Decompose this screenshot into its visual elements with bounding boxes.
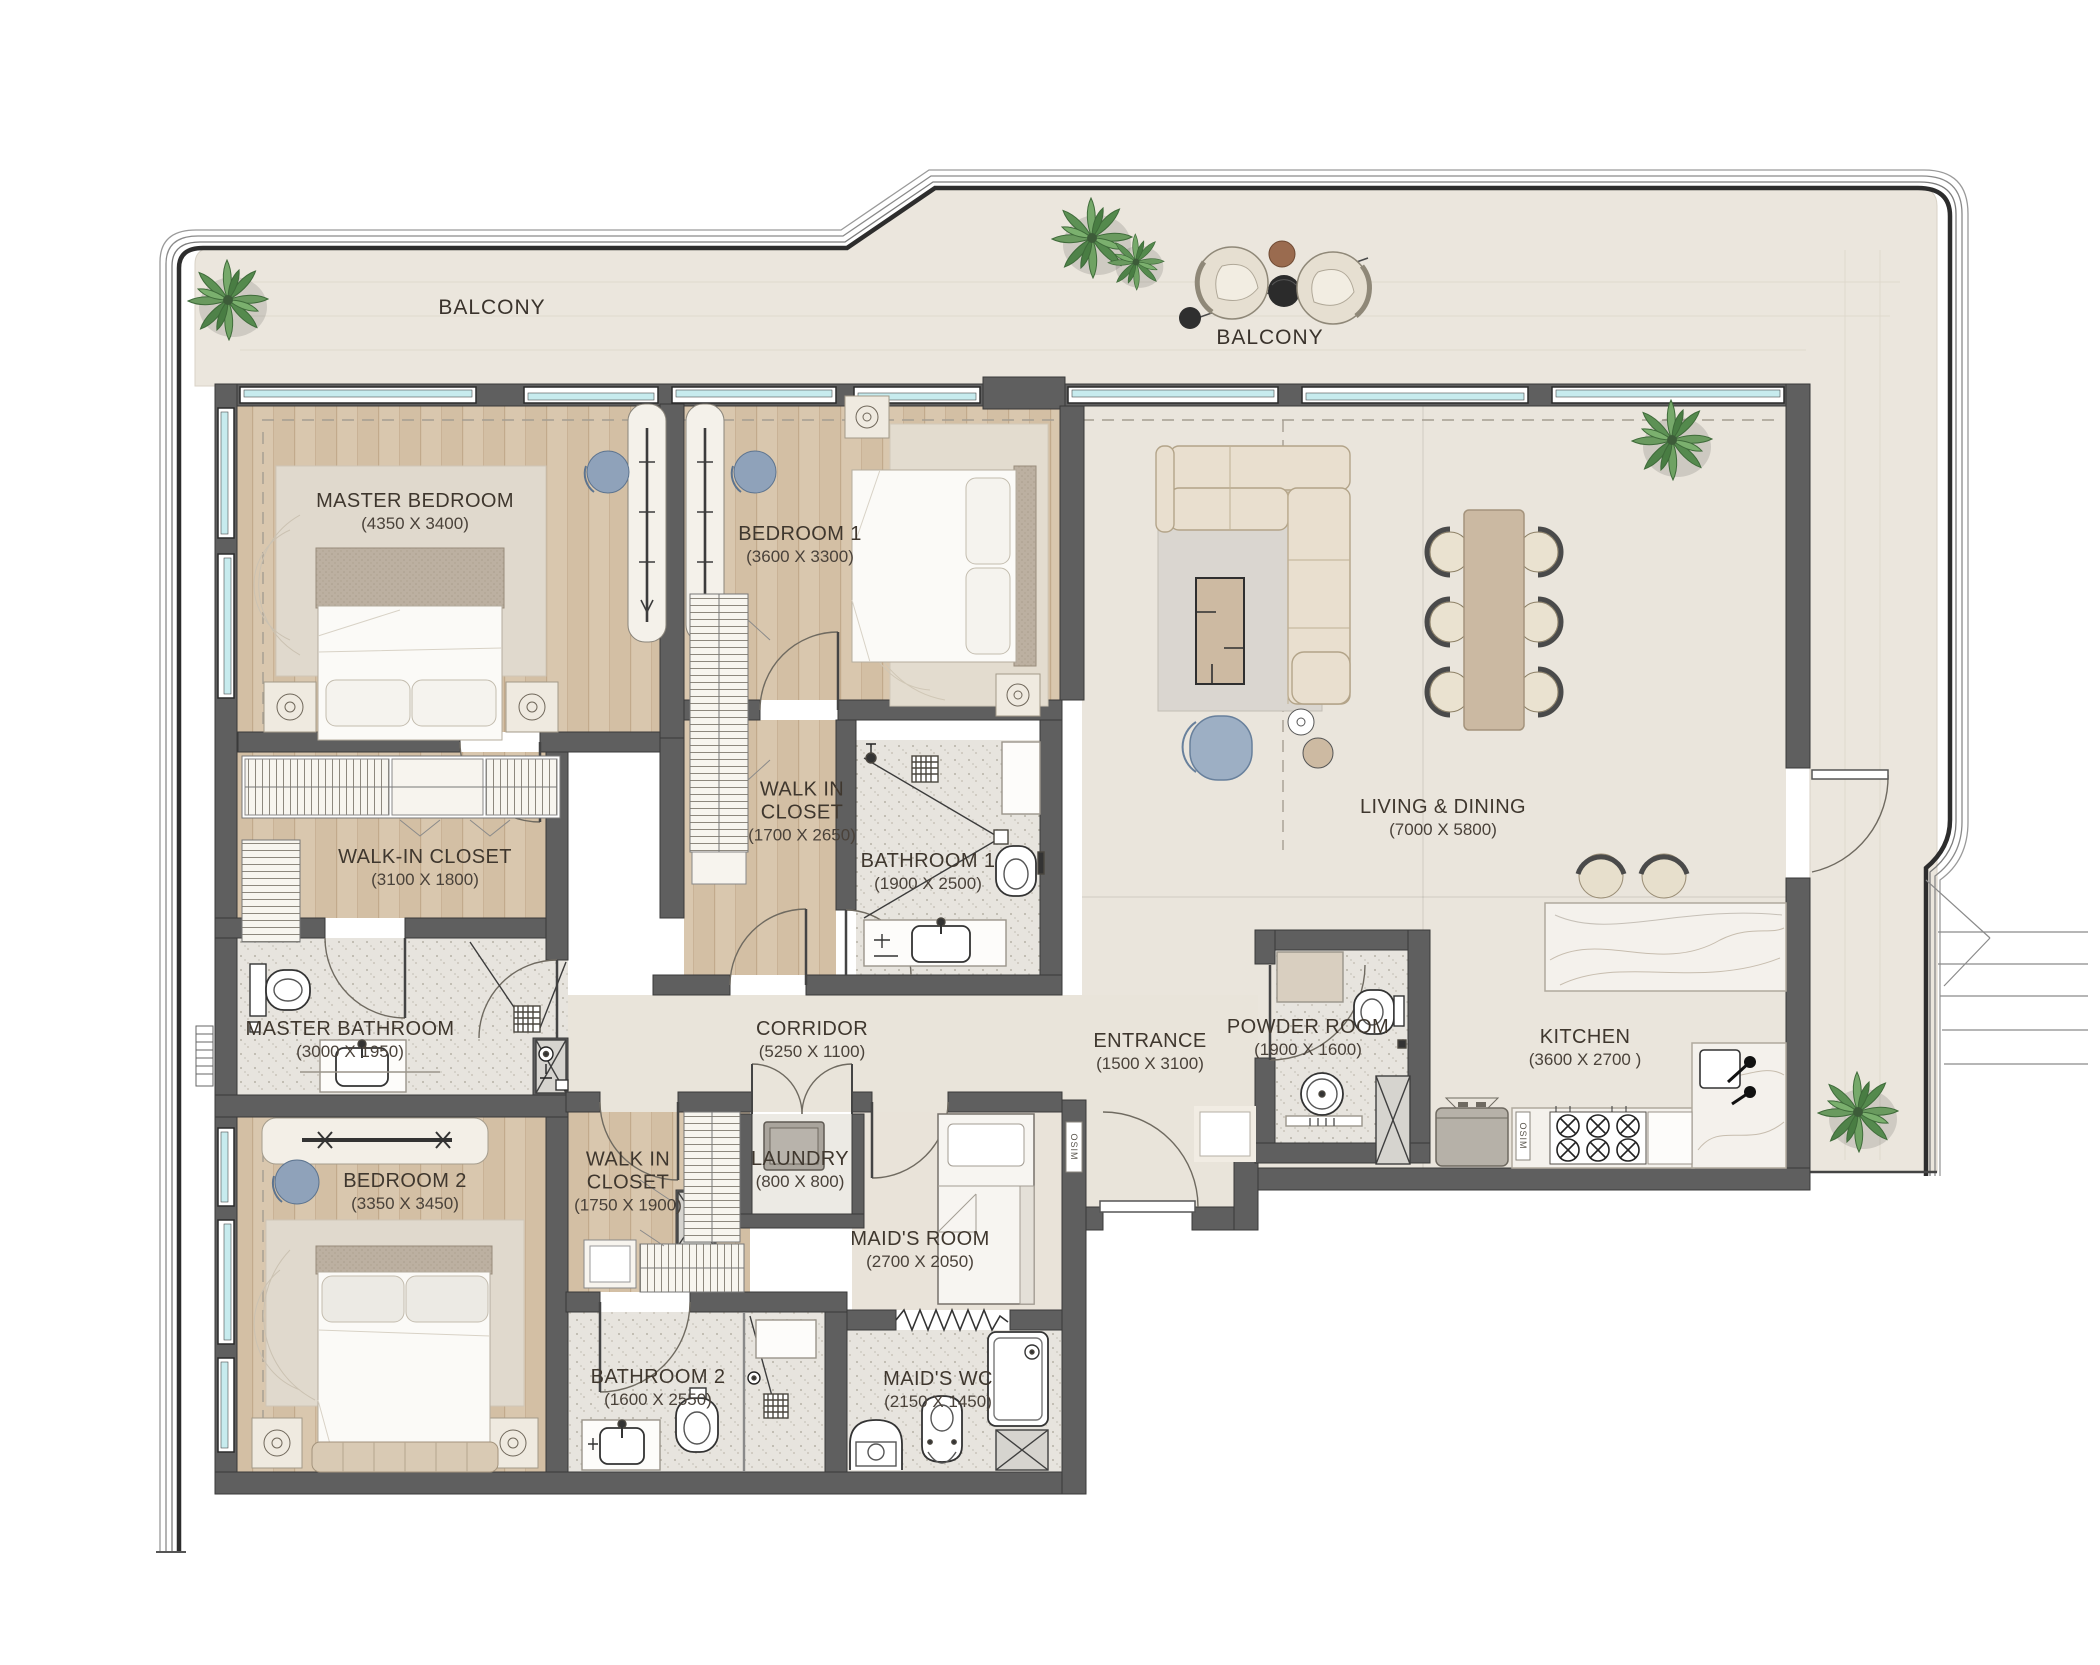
room-dims: (1600 X 2550) xyxy=(591,1390,726,1410)
room-dims: (3350 X 3450) xyxy=(343,1194,467,1214)
room-name: BATHROOM 2 xyxy=(591,1366,726,1389)
room-name: MAID'S WC xyxy=(883,1368,993,1391)
floor-plan-drawing xyxy=(0,0,2100,1665)
room-label-living-dining: LIVING & DINING (7000 X 5800) xyxy=(1360,796,1526,840)
round-chair-icon xyxy=(1297,252,1369,324)
room-label-walk-in-closet-master: WALK-IN CLOSET (3100 X 1800) xyxy=(338,846,512,890)
room-name: WALK IN CLOSET xyxy=(569,1149,687,1195)
room-name: WALK-IN CLOSET xyxy=(338,846,512,869)
room-label-kitchen: KITCHEN (3600 X 2700 ) xyxy=(1529,1026,1641,1070)
room-dims: (3000 X 1950) xyxy=(246,1042,455,1062)
room-label-powder-room: POWDER ROOM (1900 X 1600) xyxy=(1227,1016,1389,1060)
shower-tray-icon xyxy=(988,1332,1048,1426)
room-name: WALK IN CLOSET xyxy=(743,779,861,825)
room-name: CORRIDOR xyxy=(756,1018,868,1041)
room-name: ENTRANCE xyxy=(1093,1030,1206,1053)
balcony-label-top-left: BALCONY xyxy=(438,296,545,320)
room-dims: (1750 X 1900) xyxy=(569,1196,687,1216)
room-dims: (5250 X 1100) xyxy=(756,1042,868,1062)
room-label-walk-in-closet-1: WALK IN CLOSET (1700 X 2650) xyxy=(743,779,861,846)
room-name: MASTER BATHROOM xyxy=(246,1018,455,1041)
door-tag: OSIM xyxy=(1518,1122,1528,1149)
floor-plan: MASTER BEDROOM (4350 X 3400) BEDROOM 1 (… xyxy=(0,0,2100,1665)
room-label-master-bathroom: MASTER BATHROOM (3000 X 1950) xyxy=(246,1018,455,1062)
room-dims: (1500 X 3100) xyxy=(1093,1054,1206,1074)
room-dims: (800 X 800) xyxy=(751,1172,849,1192)
room-label-entrance: ENTRANCE (1500 X 3100) xyxy=(1093,1030,1206,1074)
room-name: BEDROOM 2 xyxy=(343,1170,467,1193)
room-dims: (7000 X 5800) xyxy=(1360,820,1526,840)
room-label-master-bedroom: MASTER BEDROOM (4350 X 3400) xyxy=(316,490,514,534)
room-name: BEDROOM 1 xyxy=(738,523,862,546)
room-dims: (2150 X 1450) xyxy=(883,1392,993,1412)
room-name: KITCHEN xyxy=(1529,1026,1641,1049)
room-label-maids-room: MAID'S ROOM (2700 X 2050) xyxy=(850,1228,989,1272)
room-dims: (3600 X 2700 ) xyxy=(1529,1050,1641,1070)
balcony-label-top-right: BALCONY xyxy=(1216,326,1323,350)
basin-icon xyxy=(850,1420,902,1470)
room-name: LAUNDRY xyxy=(751,1148,849,1171)
room-label-maids-wc: MAID'S WC (2150 X 1450) xyxy=(883,1368,993,1412)
louver-vent-icon xyxy=(196,1026,213,1086)
room-label-corridor: CORRIDOR (5250 X 1100) xyxy=(756,1018,868,1062)
room-label-bedroom-2: BEDROOM 2 (3350 X 3450) xyxy=(343,1170,467,1214)
room-dims: (3600 X 3300) xyxy=(738,547,862,567)
room-name: LIVING & DINING xyxy=(1360,796,1526,819)
room-name: MAID'S ROOM xyxy=(850,1228,989,1251)
room-name: MASTER BEDROOM xyxy=(316,490,514,513)
room-label-walk-in-closet-2: WALK IN CLOSET (1750 X 1900) xyxy=(569,1149,687,1216)
room-dims: (1900 X 2500) xyxy=(861,874,996,894)
room-dims: (1900 X 1600) xyxy=(1227,1040,1389,1060)
room-name: POWDER ROOM xyxy=(1227,1016,1389,1039)
room-name: BATHROOM 1 xyxy=(861,850,996,873)
door-tag: OSIM xyxy=(1069,1133,1079,1160)
room-label-laundry: LAUNDRY (800 X 800) xyxy=(751,1148,849,1192)
room-label-bedroom-1: BEDROOM 1 (3600 X 3300) xyxy=(738,523,862,567)
room-label-bathroom-1: BATHROOM 1 (1900 X 2500) xyxy=(861,850,996,894)
room-dims: (1700 X 2650) xyxy=(743,826,861,846)
room-dims: (4350 X 3400) xyxy=(316,514,514,534)
round-chair-icon xyxy=(1196,247,1268,319)
room-label-bathroom-2: BATHROOM 2 (1600 X 2550) xyxy=(591,1366,726,1410)
dining-set xyxy=(1427,510,1561,730)
room-dims: (2700 X 2050) xyxy=(850,1252,989,1272)
maids-room-furniture xyxy=(938,1114,1034,1304)
room-dims: (3100 X 1800) xyxy=(338,870,512,890)
